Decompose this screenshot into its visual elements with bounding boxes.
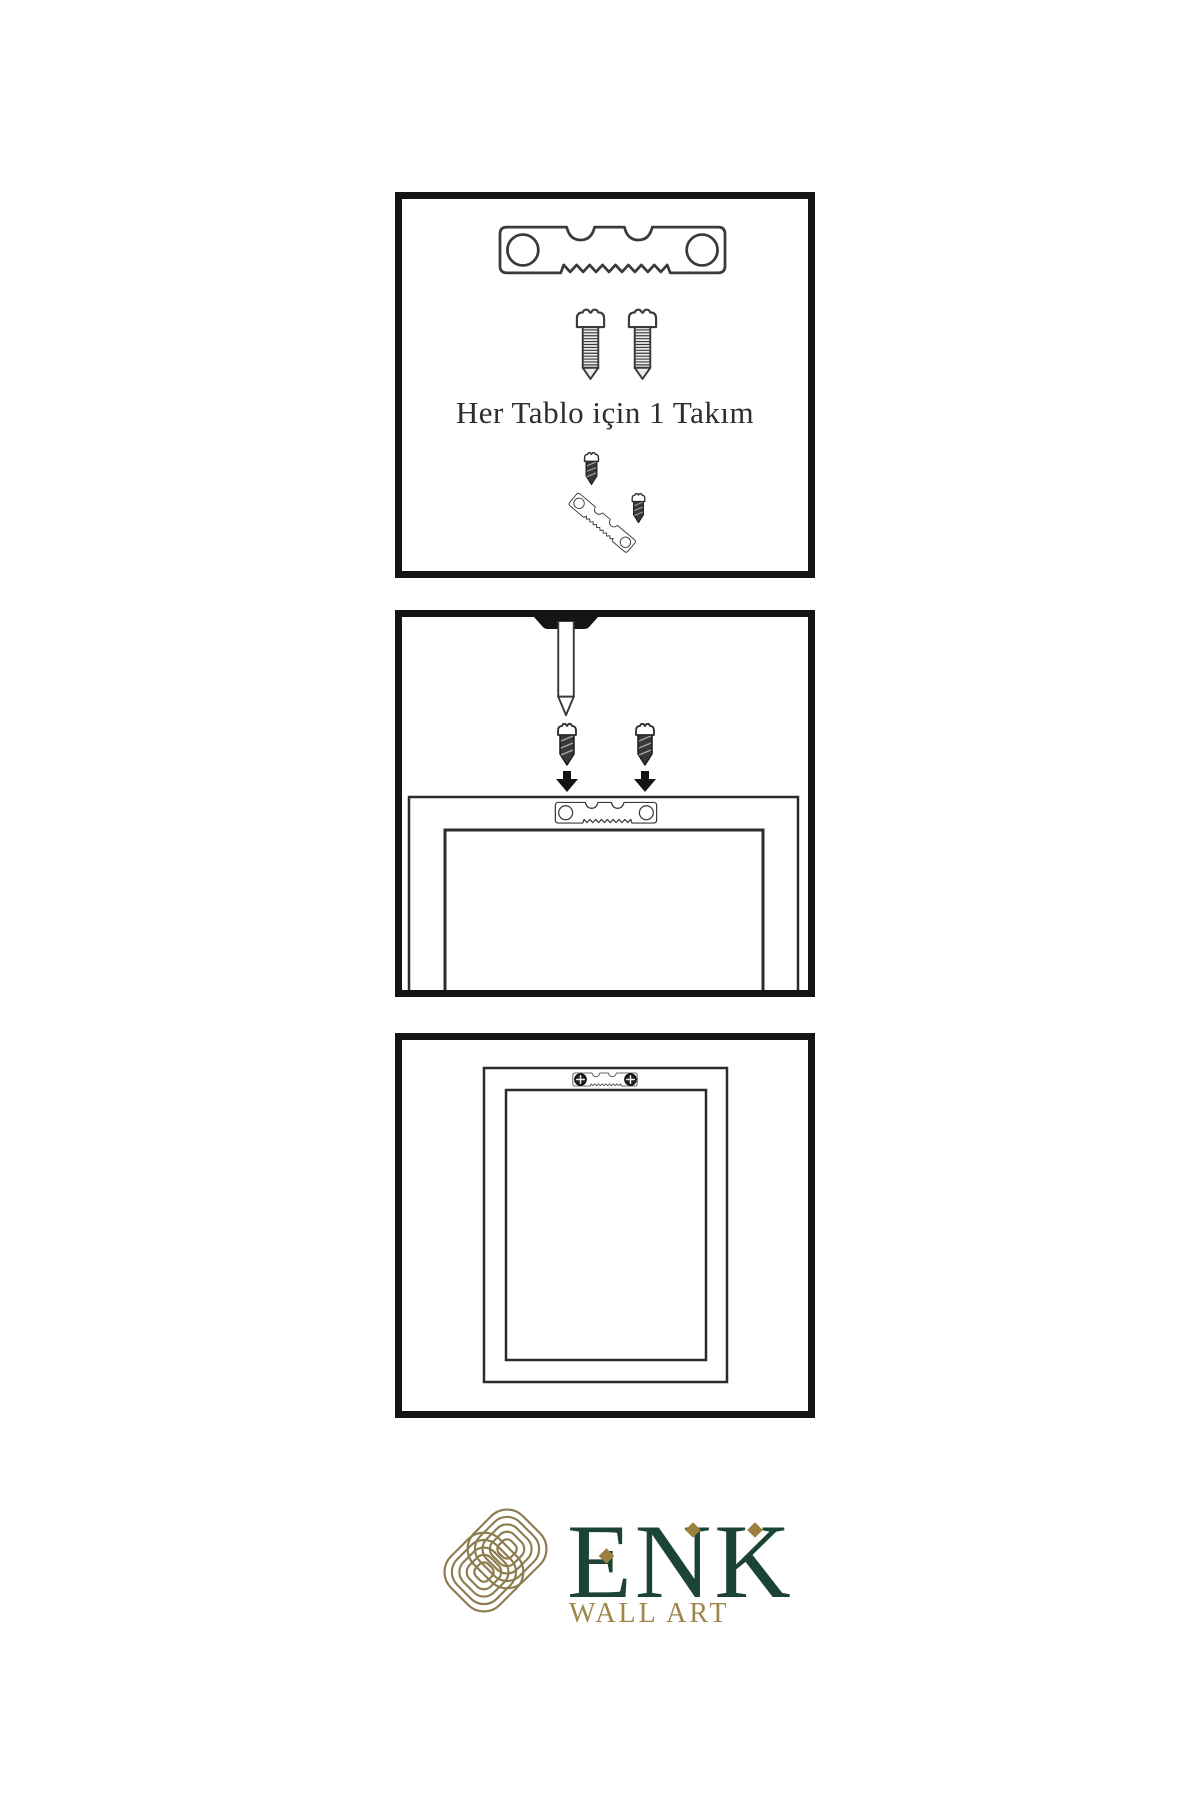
down-arrow-icon [634,771,656,792]
small-screw-icon [585,453,599,485]
frame-back-inner-edge [445,830,763,990]
small-screw-icon [558,724,576,765]
step-1-caption: Her Tablo için 1 Takım [402,395,808,431]
threaded-screw-icon [577,310,604,379]
phillips-screw-head-icon [575,1074,587,1086]
brand-knot-icon [435,1500,555,1620]
brand-logo-art: ENK WALL ART [395,1480,815,1710]
sawtooth-hanger-icon [500,227,725,273]
instruction-sheet: Her Tablo için 1 Takım [0,0,1200,1800]
step-2-panel [395,610,815,997]
framed-picture-inner-edge [506,1090,706,1360]
small-screw-icon [632,493,645,522]
phillips-screw-head-icon [625,1074,637,1086]
threaded-screw-icon [629,310,656,379]
small-screw-icon [636,724,654,765]
wall-nail-icon [558,621,574,715]
sawtooth-hanger-icon [555,802,656,823]
mounted-hanger-group [573,1073,637,1086]
mounting-detail-group [568,453,645,554]
step-1-drawing [402,199,808,571]
brand-tagline: WALL ART [569,1598,730,1629]
down-arrow-icon [556,771,578,792]
step-3-panel [395,1033,815,1418]
step-3-drawing [402,1040,808,1411]
sawtooth-hanger-icon [568,492,636,553]
step-1-panel: Her Tablo için 1 Takım [395,192,815,578]
step-2-drawing [402,617,808,990]
brand-logo: ENK WALL ART [395,1480,815,1710]
